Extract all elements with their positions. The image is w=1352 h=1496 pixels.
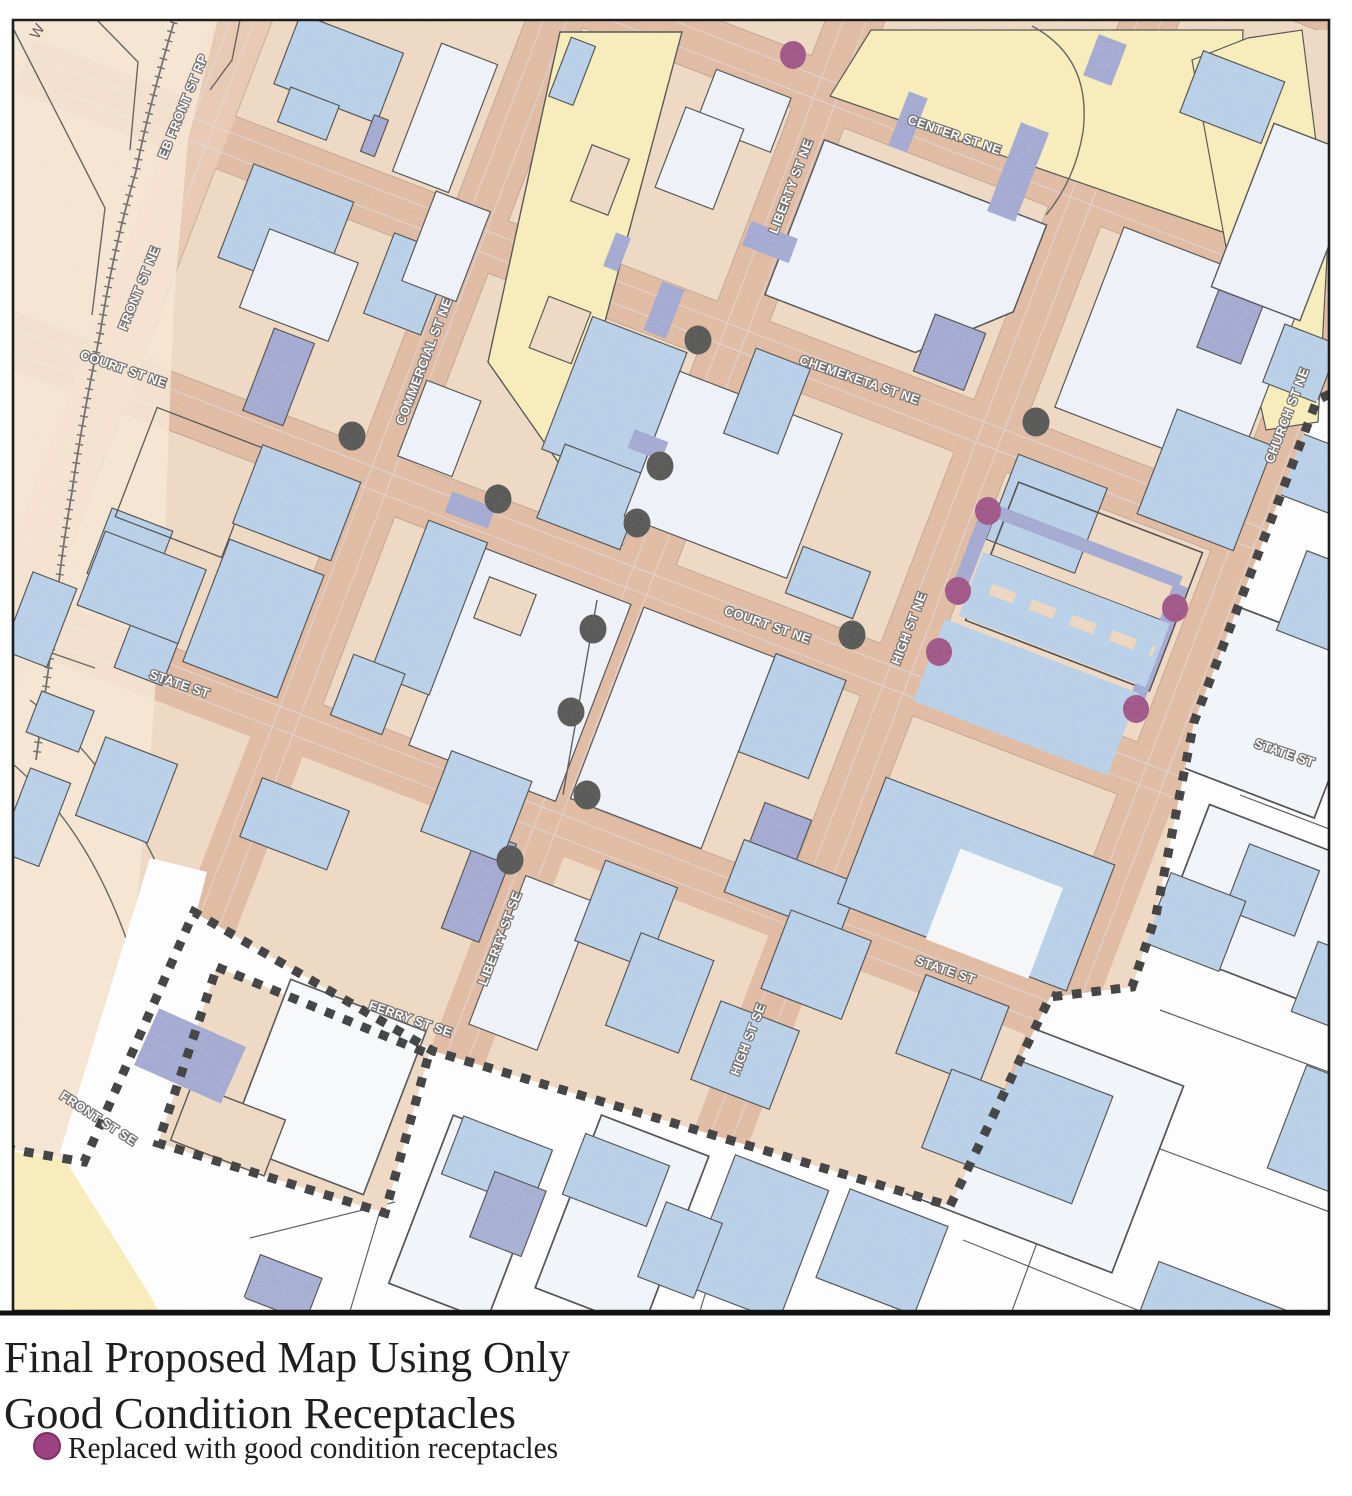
svg-text:Replaced with good condition r: Replaced with good condition receptacles: [68, 1431, 558, 1465]
svg-text:Final Proposed Map Using Only: Final Proposed Map Using Only: [4, 1333, 570, 1382]
